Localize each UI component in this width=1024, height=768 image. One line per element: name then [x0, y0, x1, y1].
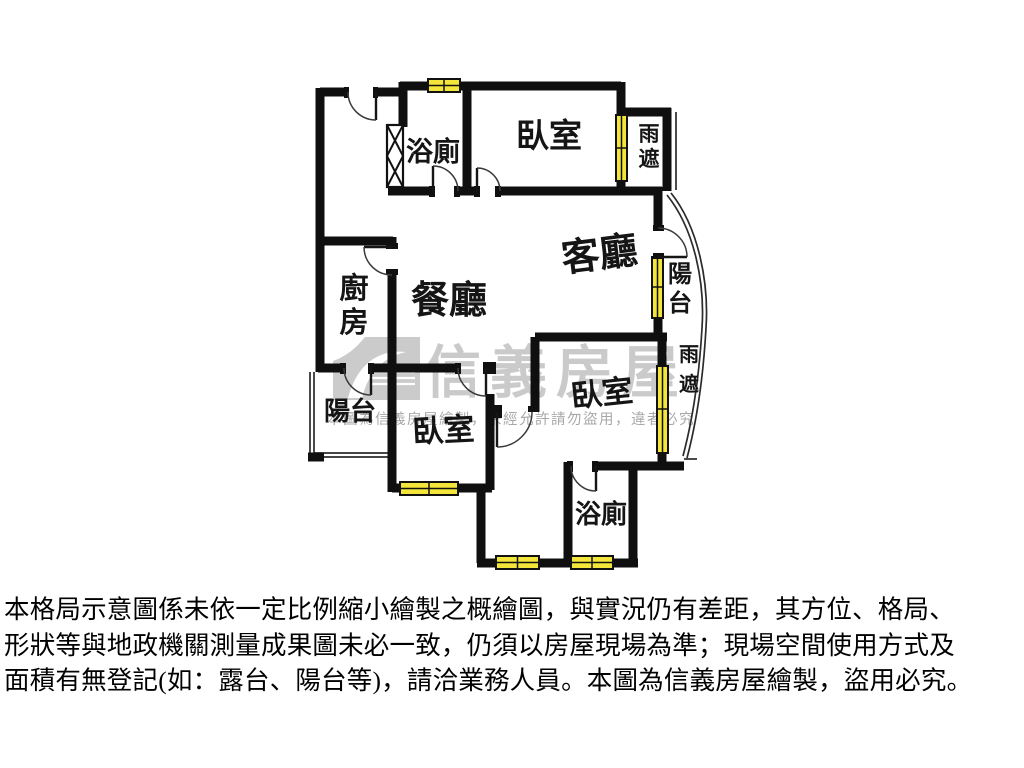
floorplan-page: 信義房屋 本圖為信義房屋繪製，未經允許請勿盜用，違者必究 — [0, 0, 1024, 768]
room-label-living: 客廳 — [559, 229, 640, 281]
window-icon-top — [428, 79, 460, 92]
watermark-layer: 信義房屋 本圖為信義房屋繪製，未經允許請勿盜用，違者必究 — [327, 337, 695, 428]
window-icon-bath-bottom — [571, 556, 613, 569]
disclaimer-block: 本格局示意圖係未依一定比例縮小繪製之概繪圖，與實況仍有差距，其方位、格局、 形狀… — [4, 592, 1022, 699]
window-icon-bedroom-top — [616, 115, 627, 181]
door-bedroom-top — [474, 168, 501, 197]
window-icon-living-balcony — [652, 257, 663, 318]
window-icon-bedroom-right — [657, 366, 668, 453]
door-bath-top — [429, 166, 460, 197]
room-label-canopy-bottom-2: 遮 — [679, 372, 699, 396]
room-label-balcony-left: 陽台 — [324, 396, 376, 426]
room-label-bedroom-top: 臥室 — [516, 117, 582, 155]
room-label-bedroom-left: 臥室 — [412, 411, 476, 449]
brand-watermark-text: 信義房屋 — [424, 342, 688, 405]
room-label-bath-bottom: 浴廁 — [575, 499, 627, 529]
window-icon-bedroom-left — [400, 482, 458, 495]
room-label-canopy-top-2: 遮 — [639, 147, 660, 171]
room-label-kitchen-1: 廚 — [339, 271, 368, 305]
room-label-bath-top: 浴廁 — [406, 136, 460, 167]
room-label-bedroom-right: 臥室 — [569, 373, 634, 414]
room-label-canopy-top-1: 雨 — [639, 122, 660, 146]
room-label-canopy-bottom-1: 雨 — [679, 344, 699, 366]
disclaimer-line-1: 本格局示意圖係未依一定比例縮小繪製之概繪圖，與實況仍有差距，其方位、格局、 — [4, 592, 1022, 628]
disclaimer-line-2: 形狀等與地政機關測量成果圖未必一致，仍須以房屋現場為準；現場空間使用方式及 — [4, 628, 1022, 664]
pipe-shaft-icon — [387, 125, 403, 187]
room-label-kitchen-2: 房 — [339, 306, 368, 339]
door-kitchen — [364, 243, 398, 275]
anti-piracy-watermark-text: 本圖為信義房屋繪製，未經允許請勿盜用，違者必究 — [327, 410, 695, 428]
room-label-balcony-right-2: 台 — [668, 289, 692, 317]
door-entry — [344, 87, 378, 120]
door-living-balcony — [653, 225, 687, 259]
window-icon-hall-bottom — [496, 556, 539, 569]
disclaimer-line-3: 面積有無登記(如：露台、陽台等)，請洽業務人員。本圖為信義房屋繪製，盜用必究。 — [4, 663, 1022, 699]
room-label-balcony-right-1: 陽 — [668, 261, 692, 288]
room-label-dining: 餐廳 — [411, 280, 487, 322]
